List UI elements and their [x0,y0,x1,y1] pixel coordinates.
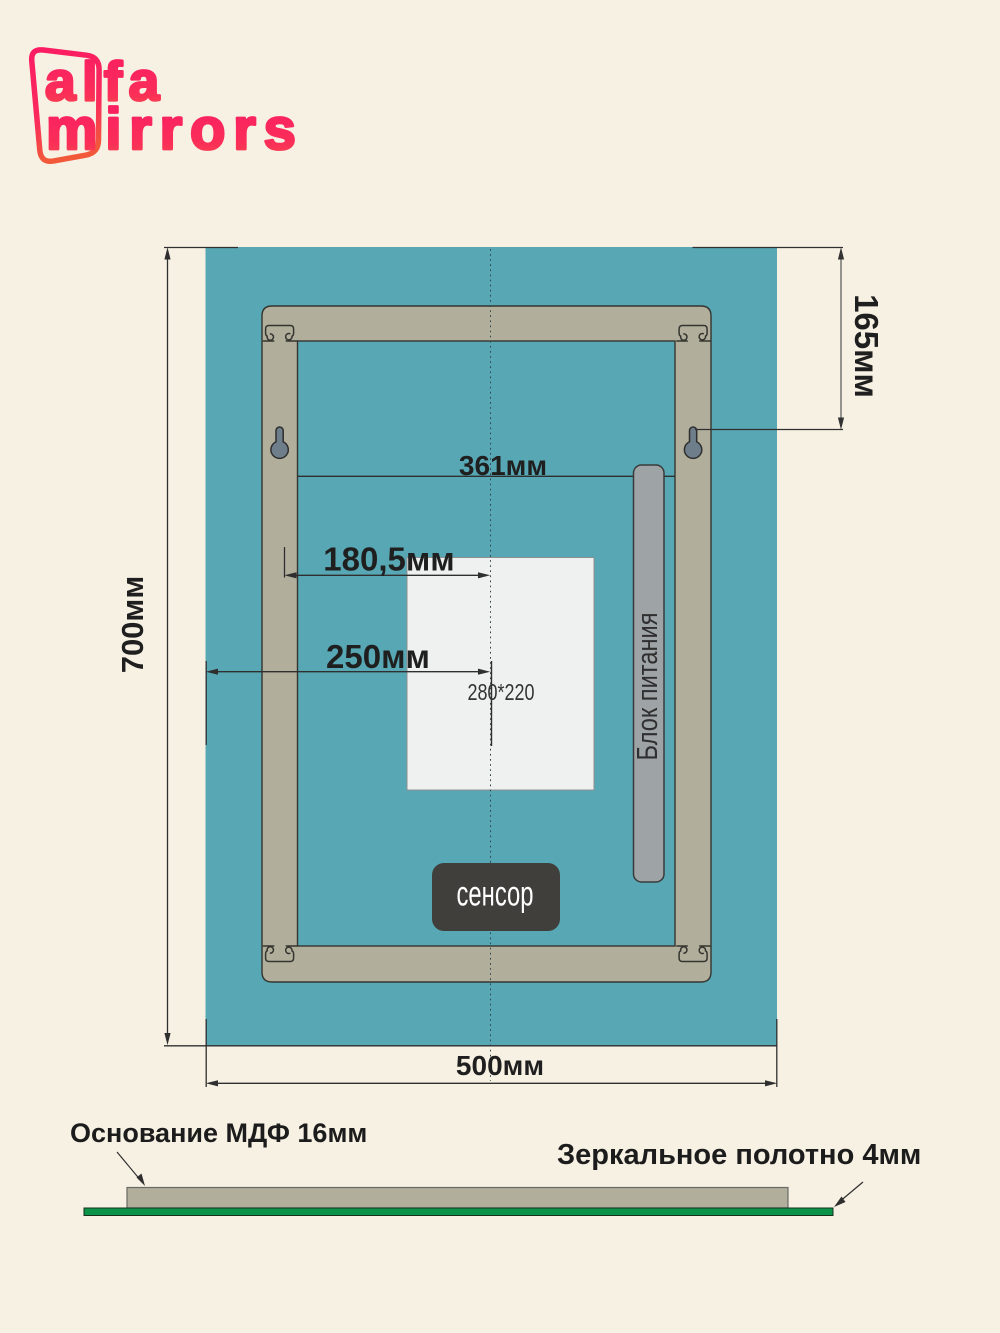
svg-text:165мм: 165мм [848,294,885,398]
svg-text:Зеркальное полотно 4мм: Зеркальное полотно 4мм [557,1139,921,1171]
svg-text:280*220: 280*220 [468,679,535,705]
svg-text:180,5мм: 180,5мм [323,541,454,578]
svg-text:mirrors: mirrors [46,97,304,162]
svg-text:361мм: 361мм [459,450,547,481]
svg-text:250мм: 250мм [326,638,430,675]
svg-text:500мм: 500мм [456,1050,544,1081]
svg-text:Блок питания: Блок питания [632,613,664,761]
svg-text:700мм: 700мм [115,576,150,674]
svg-text:сенсор: сенсор [457,875,534,914]
svg-text:Основание МДФ 16мм: Основание МДФ 16мм [70,1118,367,1148]
